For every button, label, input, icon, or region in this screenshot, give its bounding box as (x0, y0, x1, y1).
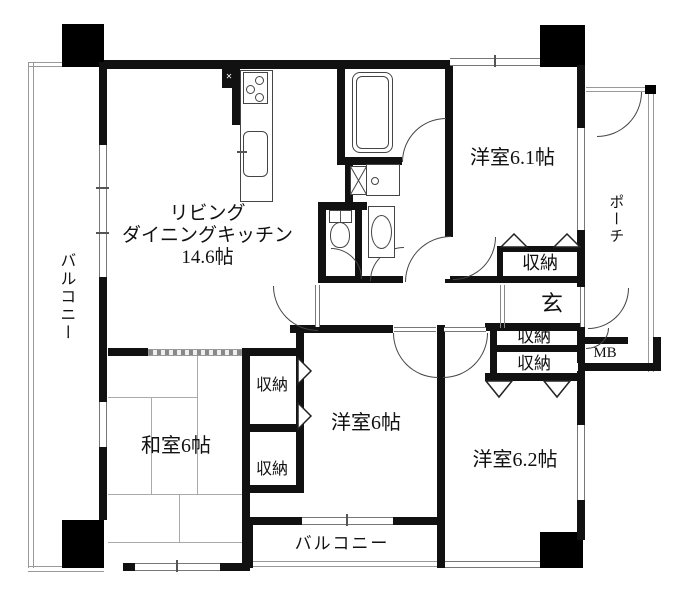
floor-plan: ✕ リビング ダイニングキッチン 14.6帖 洋室6.1帖 洋室6帖 洋室6.2… (0, 0, 688, 600)
pillar-bottom-left (62, 520, 104, 568)
tatami-line (197, 356, 198, 495)
toilet-bowl-icon (330, 222, 350, 248)
pillar-top-left (62, 24, 104, 67)
bottom-balcony-boundary (253, 561, 437, 567)
toilet-tank-line (340, 211, 341, 222)
door-arc-porch-gate (597, 92, 642, 137)
wall-west-upper (99, 62, 107, 145)
left-balcony-boundary-top (28, 62, 64, 67)
window-mullion (346, 514, 348, 526)
door-arc-room61 (453, 237, 496, 280)
wall-toilet-west (318, 202, 326, 283)
stove-burner-icon (246, 85, 255, 94)
tatami-line (108, 494, 242, 495)
window-mullion (96, 187, 109, 189)
wall-closet-bottom (242, 485, 304, 493)
room-label-ldk: リビング ダイニングキッチン 14.6帖 (100, 203, 315, 269)
bifold-indicator-down (485, 380, 513, 399)
sliding-door-japanese (148, 349, 242, 356)
stove-burner-icon (255, 93, 264, 102)
closet-label-japanese: 収納 (248, 461, 296, 479)
door-arc-ldk (273, 286, 318, 331)
door-arc-bathroom (402, 118, 446, 162)
wall-balcony-west (245, 517, 253, 568)
wall-mb-bottom (578, 363, 661, 371)
wall-east-62-upper (577, 371, 585, 425)
wall-japanese-north-west (108, 348, 148, 356)
room-label-balcony-side: バルコニー (56, 252, 74, 342)
window-room62-south (445, 561, 540, 568)
wall-west-lower (99, 447, 107, 520)
door-arc-washroom (405, 236, 451, 282)
room-label-balcony-bottom: バルコニー (272, 534, 412, 554)
closet-label-hall: 収納 (490, 327, 578, 347)
laundry-drain-icon (371, 177, 379, 185)
wall-bath-west (337, 62, 345, 161)
wall-corridor-north-east (450, 276, 583, 283)
stove-burner-icon (255, 76, 264, 85)
room-label-entrance: 玄 (532, 291, 572, 316)
room-label-western-6: 洋室6帖 (306, 412, 426, 435)
pillar-top-right (540, 25, 585, 67)
wall-mb-right (653, 337, 661, 371)
range-duct-icon: ✕ (222, 66, 236, 88)
tatami-line (108, 397, 198, 398)
tatami-line (108, 542, 242, 543)
wall-east-top (577, 65, 585, 128)
door-leaf-room62 (444, 327, 486, 332)
room-label-japanese: 和室6帖 (116, 435, 236, 458)
bifold-indicator-down (543, 380, 571, 399)
door-arc-room6 (393, 333, 438, 378)
window-mullion (494, 55, 496, 67)
room-label-western-6-1: 洋室6.1帖 (445, 147, 580, 170)
ldk-line1: リビング (100, 203, 315, 225)
window-japanese-west (99, 402, 107, 447)
wall-balcony-north-left (245, 517, 302, 525)
wall-east-62-lower (577, 500, 585, 540)
door-arc-room62 (443, 333, 488, 378)
ldk-size: 14.6帖 (100, 247, 315, 269)
bifold-indicator-up (553, 233, 581, 248)
bifold-indicator-right (297, 357, 313, 385)
closet-label-room6: 収納 (248, 377, 296, 395)
pillar-porch-corner (645, 85, 656, 94)
closet-label-room61: 収納 (497, 253, 583, 274)
left-balcony-boundary (28, 62, 34, 568)
vanity-bowl-icon (371, 215, 392, 249)
wall-top (104, 60, 450, 69)
faucet-icon (237, 151, 247, 153)
room-label-porch: ポーチ (606, 194, 623, 245)
wall-japanese-south-left (123, 563, 135, 571)
window-mullion (176, 560, 178, 572)
room-label-western-6-2: 洋室6.2帖 (445, 449, 585, 472)
porch-boundary-right (648, 87, 654, 372)
door-leaf-entrance (580, 287, 585, 327)
door-arc-entrance (588, 288, 629, 329)
genkan-step-line (504, 285, 505, 328)
ldk-line2: ダイニングキッチン (100, 225, 315, 247)
wall-west-mid (99, 277, 107, 402)
window-room61-east (577, 128, 585, 230)
tatami-line (179, 494, 180, 543)
wall-closet-mid (242, 424, 304, 432)
wall-japanese-north-east (242, 348, 304, 356)
pipe-space-icon (350, 166, 367, 195)
kitchen-sink-icon (243, 131, 268, 177)
genkan-step-line (500, 285, 501, 328)
room-label-meter-box: MB (584, 345, 626, 362)
door-leaf-room6 (394, 327, 436, 332)
bathtub-inner (356, 76, 389, 149)
closet-label-room62: 収納 (490, 354, 578, 374)
bifold-indicator-up (500, 233, 528, 248)
